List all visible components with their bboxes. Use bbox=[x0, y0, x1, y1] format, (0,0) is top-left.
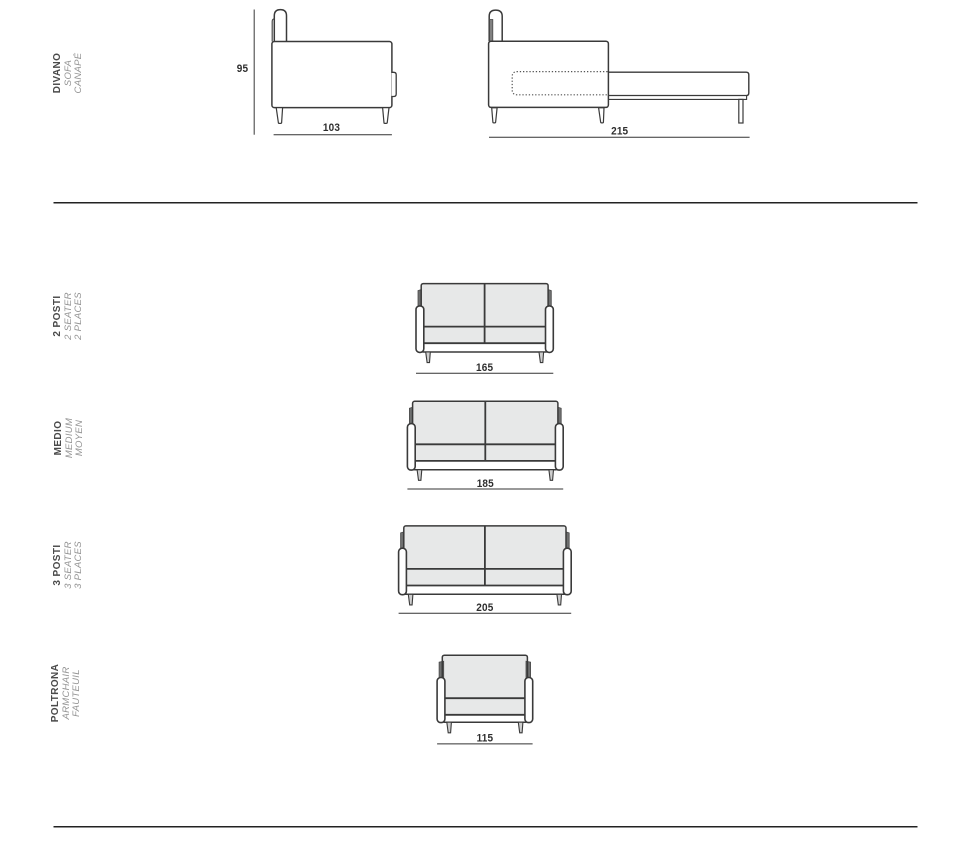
svg-text:165: 165 bbox=[476, 361, 493, 374]
svg-text:95: 95 bbox=[237, 62, 248, 75]
svg-text:115: 115 bbox=[477, 732, 494, 745]
svg-text:215: 215 bbox=[611, 125, 628, 138]
svg-text:185: 185 bbox=[477, 477, 494, 490]
svg-text:205: 205 bbox=[476, 601, 493, 614]
svg-text:103: 103 bbox=[323, 122, 340, 135]
